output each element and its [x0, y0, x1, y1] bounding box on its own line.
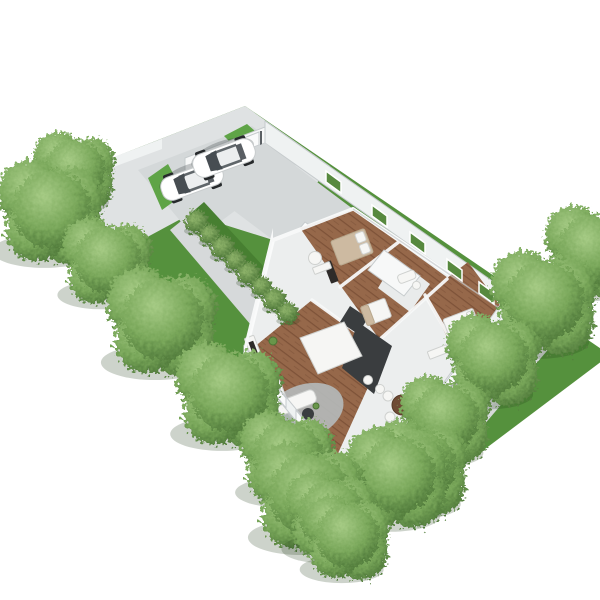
bar-stool [376, 385, 385, 394]
table-plant [313, 403, 319, 409]
armchair [309, 252, 322, 265]
patio-chair [383, 391, 393, 401]
patio-chair [385, 412, 395, 422]
floor-plan-render [0, 0, 600, 600]
bar-stool [364, 376, 373, 385]
tree [300, 496, 390, 583]
potted-plant [269, 337, 277, 345]
render-canvas [0, 0, 600, 600]
